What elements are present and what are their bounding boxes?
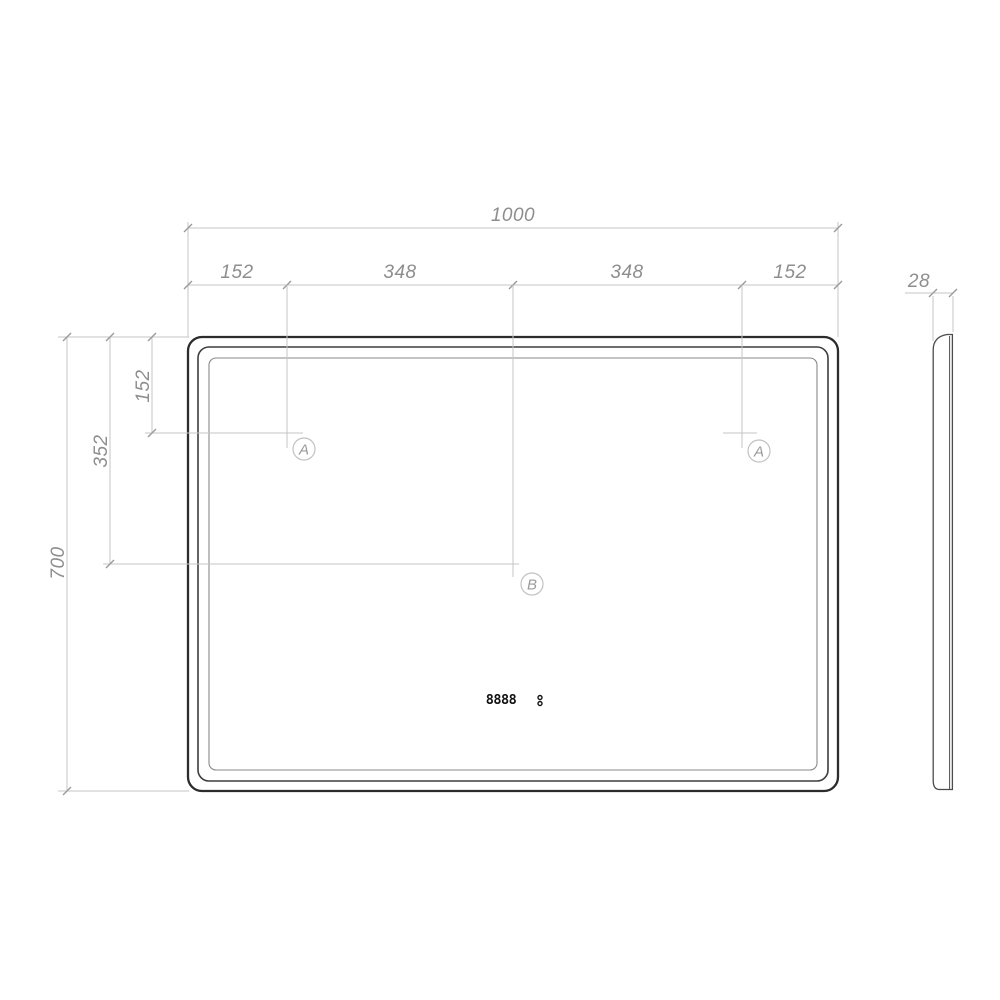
dim-label-thickness: 28 [907,271,930,292]
dim-label-seg-1: 152 [220,262,253,283]
dim-label-seg-2: 348 [383,262,416,283]
marker-label-a-right: A [753,444,764,461]
dim-label-height-352: 352 [91,434,112,467]
clock-and-sensor: 8888 [486,692,542,708]
dim-label-total-height: 700 [48,546,69,579]
dim-label-seg-4: 152 [773,262,806,283]
mirror-dimension-drawing: 1000 152 348 348 152 [0,0,1000,1000]
top-width-dimensions: 1000 152 348 348 152 [184,205,842,577]
touch-sensor-dot-top-icon [538,696,542,700]
touch-sensor-dot-bottom-icon [538,702,542,706]
technical-drawing-canvas: 1000 152 348 348 152 [0,0,1000,1000]
mirror-side-view: 28 [905,271,957,790]
dim-label-total-width: 1000 [491,205,535,226]
left-height-dimensions: 152 352 700 [48,333,757,795]
marker-label-b-center: B [527,577,537,594]
dim-label-seg-3: 348 [610,262,643,283]
dim-label-height-152: 152 [133,369,154,402]
point-markers: A A B [293,438,770,595]
marker-label-a-left: A [298,442,309,459]
clock-digital-display: 8888 [486,692,517,708]
